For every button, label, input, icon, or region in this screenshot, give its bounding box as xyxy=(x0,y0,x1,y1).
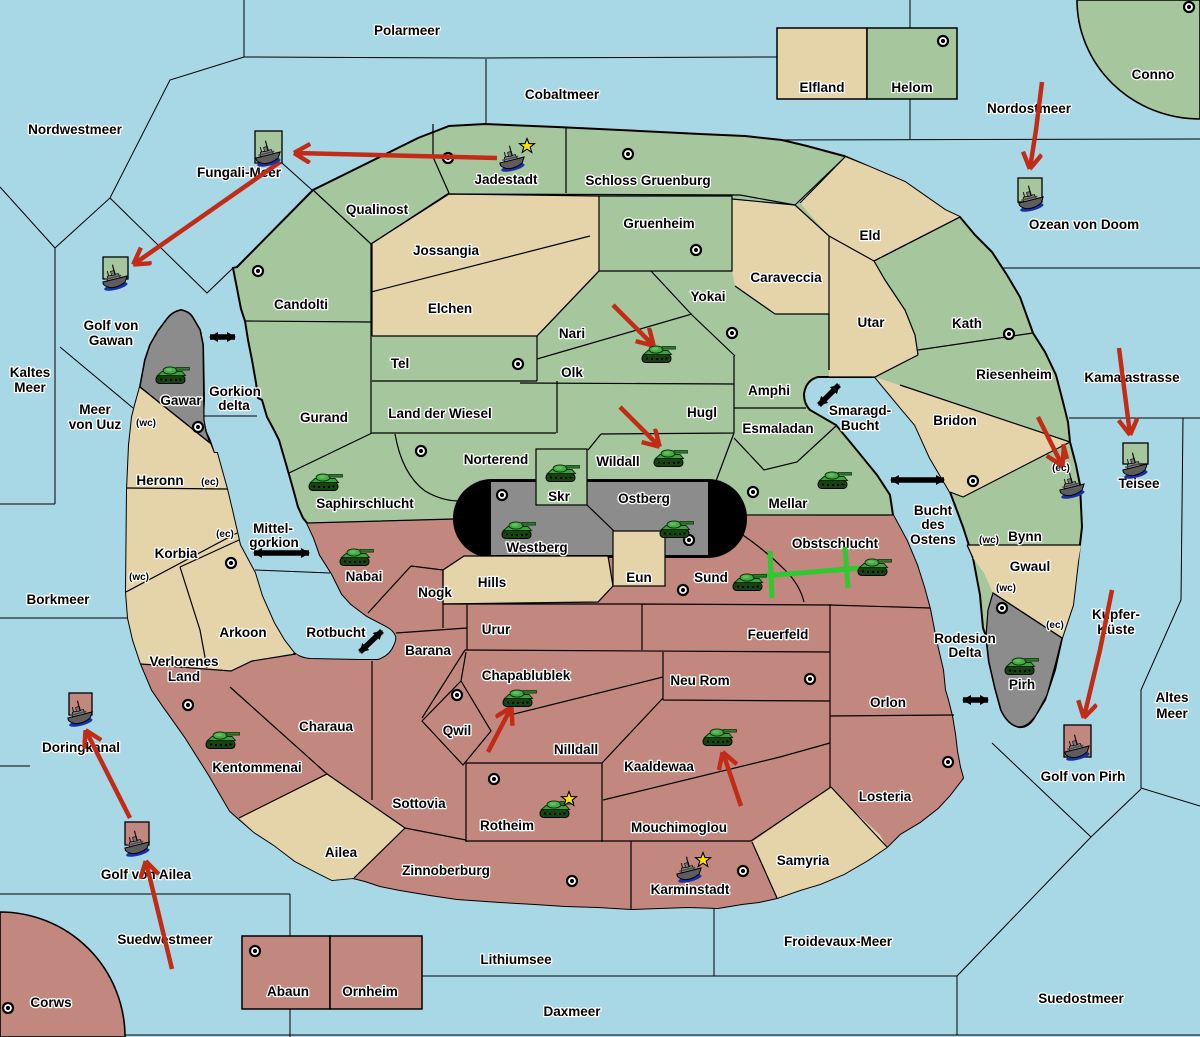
svg-text:Borkmeer: Borkmeer xyxy=(26,592,90,607)
svg-text:Eld: Eld xyxy=(859,228,880,243)
svg-text:Elfland: Elfland xyxy=(799,80,844,95)
svg-text:Kath: Kath xyxy=(952,316,982,331)
svg-text:Gruenheim: Gruenheim xyxy=(623,216,694,231)
svg-text:Verlorenes: Verlorenes xyxy=(149,654,218,669)
svg-text:Norterend: Norterend xyxy=(464,452,529,467)
svg-text:Elchen: Elchen xyxy=(428,301,472,316)
svg-text:Nogk: Nogk xyxy=(418,585,452,600)
svg-text:(wc): (wc) xyxy=(129,572,149,583)
svg-text:Esmaladan: Esmaladan xyxy=(742,421,813,436)
svg-text:Obstschlucht: Obstschlucht xyxy=(792,536,879,551)
svg-text:Losteria: Losteria xyxy=(859,789,912,804)
svg-text:Kentommenai: Kentommenai xyxy=(212,760,301,775)
svg-text:(ec): (ec) xyxy=(201,477,219,488)
svg-text:Riesenheim: Riesenheim xyxy=(976,367,1052,382)
svg-text:Sund: Sund xyxy=(694,570,728,585)
svg-text:Land der Wiesel: Land der Wiesel xyxy=(388,406,491,421)
svg-text:Daxmeer: Daxmeer xyxy=(543,1004,601,1019)
svg-text:Land: Land xyxy=(168,669,200,684)
svg-text:Candolti: Candolti xyxy=(274,297,328,312)
svg-text:Karminstadt: Karminstadt xyxy=(651,882,730,897)
svg-text:Nordostmeer: Nordostmeer xyxy=(987,101,1072,116)
svg-text:Qualinost: Qualinost xyxy=(346,202,409,217)
svg-text:Abaun: Abaun xyxy=(267,984,309,999)
svg-text:Kamalastrasse: Kamalastrasse xyxy=(1084,370,1180,385)
svg-text:(ec): (ec) xyxy=(1046,620,1064,631)
svg-text:Smaragd-: Smaragd- xyxy=(829,403,891,418)
svg-text:von Uuz: von Uuz xyxy=(69,417,122,432)
svg-text:Zinnoberburg: Zinnoberburg xyxy=(402,863,490,878)
svg-text:Ostberg: Ostberg xyxy=(618,491,670,506)
svg-text:Westberg: Westberg xyxy=(506,540,567,555)
svg-text:Meer: Meer xyxy=(14,380,46,395)
svg-text:Hills: Hills xyxy=(478,575,507,590)
svg-text:(wc): (wc) xyxy=(979,535,999,546)
svg-text:Utar: Utar xyxy=(857,315,885,330)
svg-text:Kaltes: Kaltes xyxy=(10,365,51,380)
svg-text:Hugl: Hugl xyxy=(687,405,717,420)
svg-text:Gurand: Gurand xyxy=(300,410,348,425)
svg-text:Lithiumsee: Lithiumsee xyxy=(480,952,552,967)
svg-text:Yokai: Yokai xyxy=(690,289,725,304)
svg-text:Mellar: Mellar xyxy=(768,496,808,511)
svg-text:Mittel-: Mittel- xyxy=(253,521,293,536)
svg-text:Saphirschlucht: Saphirschlucht xyxy=(316,496,414,511)
svg-text:Gawan: Gawan xyxy=(89,333,133,348)
svg-text:Ostens: Ostens xyxy=(910,532,956,547)
svg-text:gorkion: gorkion xyxy=(249,535,299,550)
svg-text:Samyria: Samyria xyxy=(777,853,830,868)
svg-text:Bynn: Bynn xyxy=(1008,529,1042,544)
svg-text:Teisee: Teisee xyxy=(1118,476,1160,491)
svg-text:Polarmeer: Polarmeer xyxy=(374,23,441,38)
svg-text:Rotbucht: Rotbucht xyxy=(306,625,366,640)
svg-text:Meer: Meer xyxy=(1156,706,1188,721)
svg-text:Delta: Delta xyxy=(948,645,982,660)
svg-text:Schloss Gruenburg: Schloss Gruenburg xyxy=(585,173,710,188)
svg-text:Helom: Helom xyxy=(891,80,932,95)
svg-text:Bridon: Bridon xyxy=(933,413,977,428)
svg-text:Gawar: Gawar xyxy=(160,393,202,408)
svg-text:Orlon: Orlon xyxy=(870,695,906,710)
svg-text:Gorkion: Gorkion xyxy=(209,384,261,399)
svg-text:Golf von Pirh: Golf von Pirh xyxy=(1041,769,1126,784)
svg-text:Jossangia: Jossangia xyxy=(413,243,480,258)
svg-text:(ec): (ec) xyxy=(216,529,234,540)
svg-text:Conno: Conno xyxy=(1132,67,1175,82)
svg-text:Froidevaux-Meer: Froidevaux-Meer xyxy=(784,934,893,949)
svg-text:Arkoon: Arkoon xyxy=(219,625,266,640)
svg-text:Kaaldewaa: Kaaldewaa xyxy=(624,759,694,774)
svg-text:Nabai: Nabai xyxy=(346,569,383,584)
svg-text:Doringkanal: Doringkanal xyxy=(42,740,120,755)
svg-text:Caraveccia: Caraveccia xyxy=(750,270,822,285)
svg-text:Skr: Skr xyxy=(548,489,571,504)
svg-text:Chapablublek: Chapablublek xyxy=(482,668,571,683)
svg-text:Feuerfeld: Feuerfeld xyxy=(748,627,809,642)
svg-text:des: des xyxy=(921,517,944,532)
svg-text:Nari: Nari xyxy=(559,326,585,341)
svg-text:Pirh: Pirh xyxy=(1009,677,1035,692)
svg-text:Gwaul: Gwaul xyxy=(1010,559,1051,574)
svg-text:Qwil: Qwil xyxy=(443,723,472,738)
svg-text:Ornheim: Ornheim xyxy=(342,984,398,999)
svg-text:Charaua: Charaua xyxy=(299,719,354,734)
svg-text:Eun: Eun xyxy=(626,570,652,585)
svg-text:Wildall: Wildall xyxy=(596,454,639,469)
svg-text:Rodesion: Rodesion xyxy=(934,631,996,646)
svg-text:Altes: Altes xyxy=(1155,690,1188,705)
svg-text:Olk: Olk xyxy=(561,365,583,380)
svg-text:Corws: Corws xyxy=(30,995,71,1010)
svg-text:Amphi: Amphi xyxy=(748,383,790,398)
svg-text:Urur: Urur xyxy=(482,622,511,637)
svg-text:delta: delta xyxy=(218,398,250,413)
svg-text:Suedostmeer: Suedostmeer xyxy=(1038,991,1124,1006)
svg-text:Ozean von Doom: Ozean von Doom xyxy=(1029,217,1139,232)
svg-text:Sottovia: Sottovia xyxy=(392,796,446,811)
svg-text:Rotheim: Rotheim xyxy=(480,818,534,833)
svg-text:(wc): (wc) xyxy=(996,583,1016,594)
svg-text:(wc): (wc) xyxy=(136,418,156,429)
svg-text:Bucht: Bucht xyxy=(914,503,953,518)
svg-text:Jadestadt: Jadestadt xyxy=(474,172,538,187)
svg-text:Nordwestmeer: Nordwestmeer xyxy=(28,122,123,137)
svg-text:Cobaltmeer: Cobaltmeer xyxy=(525,87,600,102)
svg-text:Golf von: Golf von xyxy=(84,318,139,333)
svg-text:Neu Rom: Neu Rom xyxy=(670,673,729,688)
svg-text:Kupfer-: Kupfer- xyxy=(1092,607,1140,622)
svg-text:Barana: Barana xyxy=(405,643,451,658)
svg-text:Bucht: Bucht xyxy=(841,418,880,433)
svg-text:Korbia: Korbia xyxy=(155,546,198,561)
svg-text:Tel: Tel xyxy=(391,356,410,371)
svg-text:Nilldall: Nilldall xyxy=(554,742,598,757)
svg-text:Meer: Meer xyxy=(79,402,111,417)
svg-text:Heronn: Heronn xyxy=(136,473,183,488)
svg-text:Mouchimoglou: Mouchimoglou xyxy=(631,820,727,835)
svg-text:Ailea: Ailea xyxy=(325,845,358,860)
